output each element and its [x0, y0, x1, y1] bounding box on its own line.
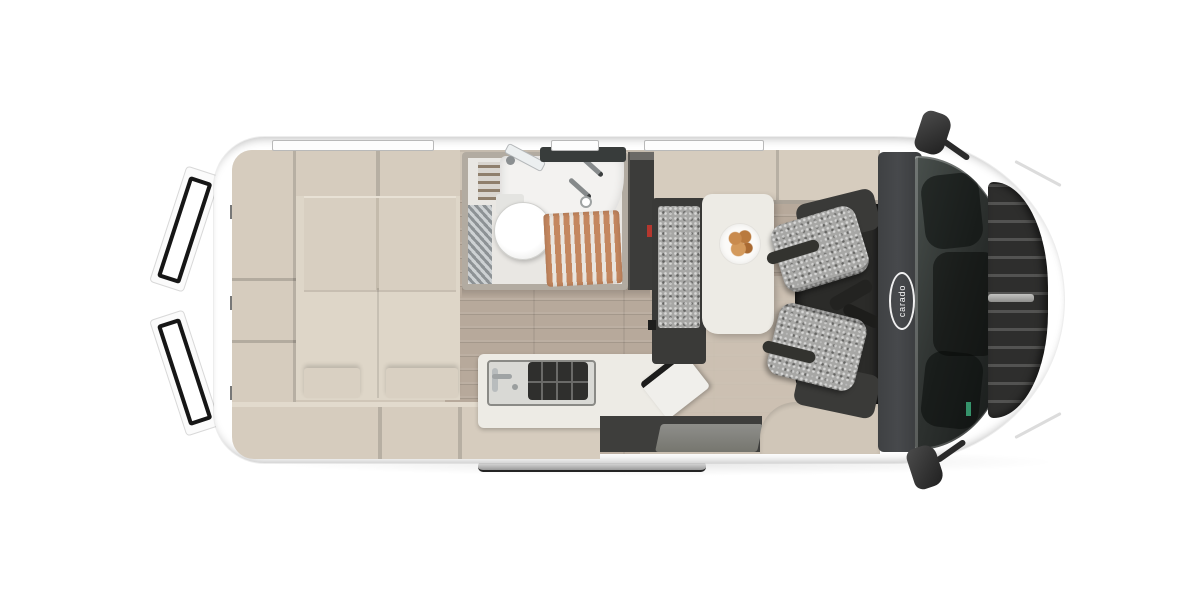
roof-window-strip [272, 140, 434, 151]
roof-window-strip [644, 140, 764, 151]
brand-logo-text: carado [897, 285, 907, 317]
bed-backrest-left [304, 368, 360, 398]
bench-belt-mark [647, 225, 652, 237]
bed-backrest-right [386, 368, 458, 398]
wall-divider [458, 407, 462, 459]
hood-crease [1014, 412, 1061, 439]
plate [719, 223, 761, 265]
campervan-floorplan: carado [0, 0, 1200, 600]
dash-silhouette [919, 349, 985, 431]
rear-door-window [157, 318, 213, 426]
wardrobe-top-cap [630, 152, 656, 160]
shelf-line [232, 278, 296, 281]
croissants [720, 224, 760, 264]
wall-divider [378, 407, 382, 459]
kitchen-stove [528, 362, 588, 400]
dash-silhouette [919, 171, 984, 251]
hood-crease [1014, 160, 1061, 187]
inspection-sticker [966, 402, 971, 416]
cabinet-divider [776, 150, 779, 200]
bathroom [462, 152, 628, 290]
brand-logo: carado [889, 272, 915, 330]
rear-door-lower [149, 309, 221, 436]
bed-seam [377, 288, 379, 398]
roof-window-strip [551, 140, 599, 151]
bench-clip [648, 320, 656, 330]
kitchen-sink-drain [512, 384, 518, 390]
bench-cushion [658, 206, 700, 328]
entry-step-platform [655, 424, 763, 452]
grille-chrome-bar [988, 294, 1034, 302]
headboard-gap [376, 198, 379, 290]
door-hinge [506, 156, 515, 165]
shower-drain [580, 196, 592, 208]
kitchen-faucet [492, 368, 498, 392]
shower-wall-corrugated [468, 205, 492, 284]
kitchen-faucet-arm [492, 374, 512, 379]
shower-slat-floor [543, 210, 623, 287]
rear-door-window [157, 176, 213, 284]
shelf-line [232, 340, 296, 343]
rear-door-upper [149, 165, 221, 292]
bench-seat [652, 198, 706, 364]
bed-headboard [304, 196, 456, 292]
cabinet-divider [376, 150, 380, 197]
